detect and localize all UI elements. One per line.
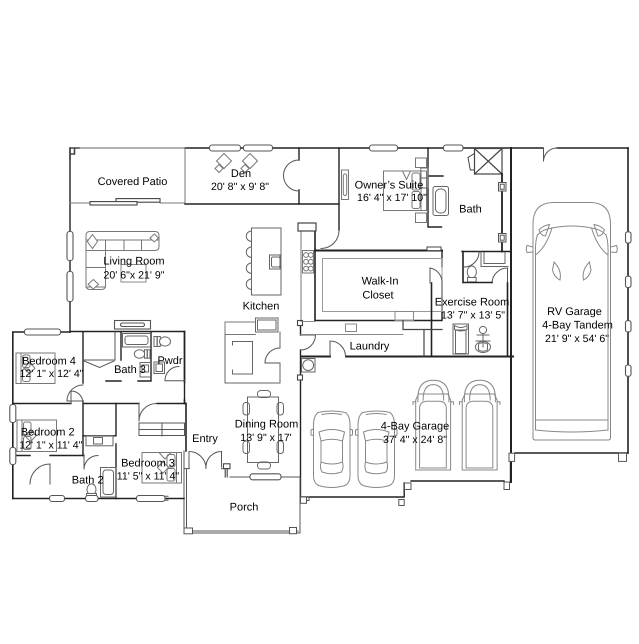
svg-text:11' 5" x 11' 4": 11' 5" x 11' 4" bbox=[117, 471, 180, 483]
svg-text:Closet: Closet bbox=[362, 290, 393, 302]
svg-text:20' 8" x 9' 8": 20' 8" x 9' 8" bbox=[211, 181, 269, 193]
svg-text:Living Room: Living Room bbox=[103, 256, 164, 268]
svg-text:Bedroom 4: Bedroom 4 bbox=[22, 356, 76, 368]
svg-text:Porch: Porch bbox=[230, 502, 259, 514]
svg-text:Entry: Entry bbox=[192, 433, 218, 445]
svg-text:Owner’s Suite: Owner’s Suite bbox=[355, 180, 424, 192]
svg-text:Bedroom 3: Bedroom 3 bbox=[121, 458, 175, 470]
svg-text:Kitchen: Kitchen bbox=[243, 301, 280, 313]
svg-text:4-Bay Tandem: 4-Bay Tandem bbox=[542, 320, 613, 332]
svg-text:Bath 3: Bath 3 bbox=[114, 364, 146, 376]
svg-text:Walk-In: Walk-In bbox=[362, 276, 399, 288]
svg-text:Bath 2: Bath 2 bbox=[72, 475, 104, 487]
svg-text:Den: Den bbox=[231, 168, 251, 180]
svg-text:16' 4" x 17' 10": 16' 4" x 17' 10" bbox=[357, 192, 427, 204]
svg-text:Bedroom 2: Bedroom 2 bbox=[21, 427, 75, 439]
svg-text:21' 9" x 54' 6": 21' 9" x 54' 6" bbox=[545, 333, 609, 345]
svg-text:Exercise Room: Exercise Room bbox=[435, 297, 510, 309]
svg-text:13' 7" x 13' 5": 13' 7" x 13' 5" bbox=[441, 310, 505, 322]
svg-text:37' 4" x 24' 8": 37' 4" x 24' 8" bbox=[383, 434, 447, 446]
svg-text:20' 6"x 21' 9": 20' 6"x 21' 9" bbox=[103, 270, 164, 282]
svg-text:Laundry: Laundry bbox=[350, 341, 390, 353]
svg-text:Bath: Bath bbox=[459, 204, 482, 216]
svg-text:Pwdr: Pwdr bbox=[157, 355, 182, 367]
svg-text:4-Bay Garage: 4-Bay Garage bbox=[381, 421, 449, 433]
svg-text:12' 1" x 12' 4": 12' 1" x 12' 4" bbox=[20, 368, 84, 380]
svg-text:13' 9" x 17': 13' 9" x 17' bbox=[240, 432, 291, 444]
svg-text:Covered Patio: Covered Patio bbox=[98, 176, 168, 188]
svg-text:Dining Room: Dining Room bbox=[235, 419, 299, 431]
svg-text:RV Garage: RV Garage bbox=[547, 306, 602, 318]
svg-text:12' 1" x 11' 4": 12' 1" x 11' 4" bbox=[19, 440, 82, 452]
